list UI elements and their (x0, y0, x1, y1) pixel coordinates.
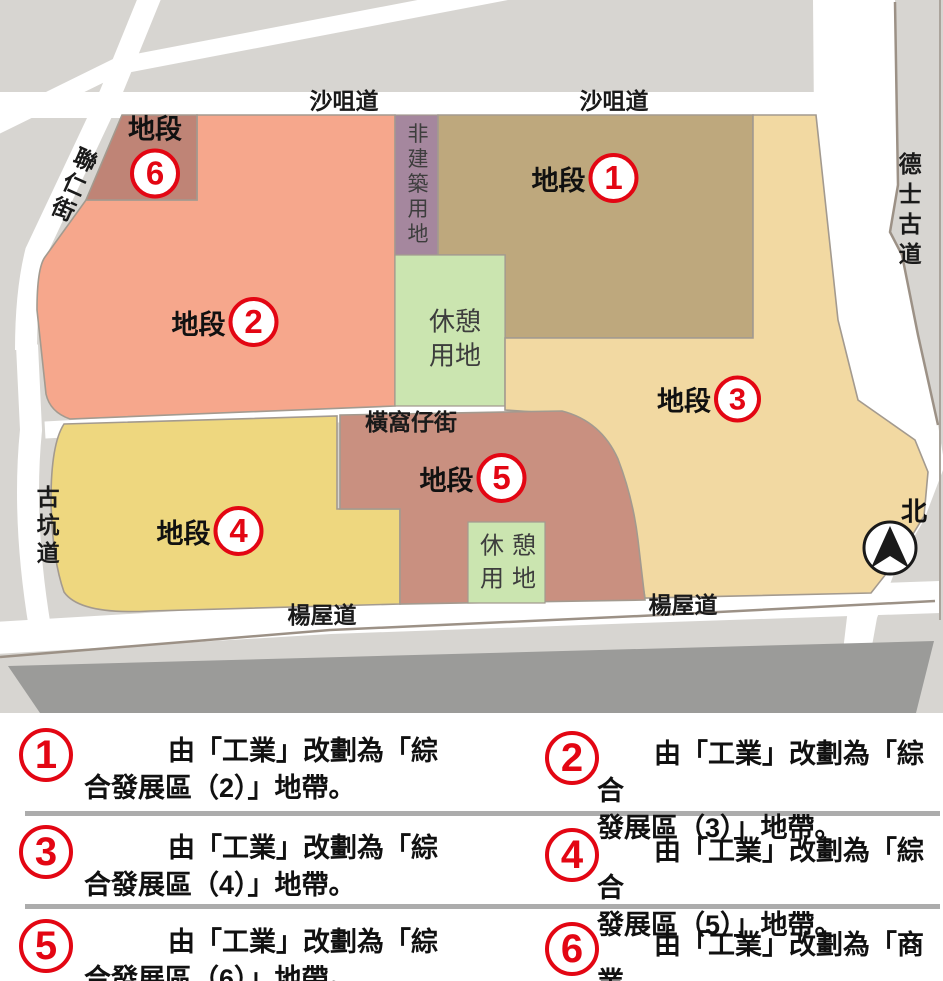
legend-item-3-line2: 合發展區（4）」地帶。 (84, 867, 456, 904)
parcel-2-number-badge: 2 (229, 297, 279, 347)
parcel-1-number-badge: 1 (589, 153, 639, 203)
parcel-4-label-group: 地段 4 (157, 506, 264, 556)
non-building-land-label: 非建築用地 (406, 123, 428, 248)
open-space-a-label-line1: 休憩 (429, 308, 481, 335)
parcel-3-label: 地段 (657, 380, 711, 419)
parcel-5-label: 地段 (420, 459, 474, 498)
legend: 1 由「工業」改劃為「綜 合發展區（2）」地帶。 2 由「工業」改劃為「綜合 發… (0, 713, 943, 981)
legend-item-3-number-badge: 3 (19, 825, 73, 879)
street-label-sha-tsui-road-east: 沙咀道 (580, 89, 649, 113)
legend-item-4-line1: 由「工業」改劃為「綜合 (597, 833, 941, 907)
legend-item-1-line2: 合發展區（2）」地帶。 (84, 770, 456, 807)
parcel-5-label-group: 地段 5 (420, 453, 527, 503)
parcel-2-label: 地段 (172, 303, 226, 342)
legend-item-6-number-badge: 6 (545, 922, 599, 976)
street-label-yeung-uk-road-west: 楊屋道 (288, 603, 357, 627)
street-label-sha-tsui-road-west: 沙咀道 (310, 89, 379, 113)
street-label-yeung-uk-road-east: 楊屋道 (649, 593, 718, 617)
parcel-3-label-group: 地段 3 (657, 376, 761, 423)
parcel-5-number-badge: 5 (477, 453, 527, 503)
street-label-koo-hang-road: 古坑道 (34, 485, 58, 569)
legend-item-6-line1: 由「工業」改劃為「商業 (597, 927, 941, 981)
legend-item-3-line1: 由「工業」改劃為「綜 (84, 830, 456, 867)
parcel-1-label: 地段 (532, 159, 586, 198)
legend-item-5-text: 由「工業」改劃為「綜 合發展區（6）」地帶。 (84, 924, 456, 981)
parcel-1-label-group: 地段 1 (532, 153, 639, 203)
legend-item-5-line1: 由「工業」改劃為「綜 (84, 924, 456, 961)
street-label-wang-wo-tsai-street: 橫窩仔街 (365, 410, 457, 434)
legend-item-4-number-badge: 4 (545, 828, 599, 882)
legend-item-5-number-badge: 5 (19, 919, 73, 973)
legend-item-3-text: 由「工業」改劃為「綜 合發展區（4）」地帶。 (84, 830, 456, 904)
open-space-b-label-line2: 用地 (472, 567, 544, 592)
legend-item-5-line2: 合發展區（6）」地帶。 (84, 961, 456, 981)
legend-item-2-text: 由「工業」改劃為「綜合 發展區（3）」地帶。 (597, 736, 941, 847)
compass-north-label: 北 (901, 492, 927, 529)
legend-item-6-text: 由「工業」改劃為「商業 （5）用途」。 (597, 927, 941, 981)
parcel-4-number-badge: 4 (214, 506, 264, 556)
parcel-6-label-group: 地段 6 (128, 108, 182, 199)
legend-item-1-text: 由「工業」改劃為「綜 合發展區（2）」地帶。 (84, 733, 456, 807)
parcel-2-label-group: 地段 2 (172, 297, 279, 347)
legend-item-1-number-badge: 1 (19, 728, 73, 782)
legend-item-1-line1: 由「工業」改劃為「綜 (84, 733, 456, 770)
open-space-b-label-line1: 休憩 (472, 534, 544, 559)
legend-item-2-line1: 由「工業」改劃為「綜合 (597, 736, 941, 810)
legend-item-2-number-badge: 2 (545, 731, 599, 785)
parcel-6-label: 地段 (128, 108, 182, 147)
open-space-a-label-line2: 用地 (429, 342, 481, 369)
street-label-texaco-road: 德士古道 (896, 152, 920, 272)
parcel-6-number-badge: 6 (130, 149, 180, 199)
zoning-map: 沙咀道 沙咀道 德士古道 聯仁街 橫窩仔街 古坑道 楊屋道 楊屋道 非建築用地 … (0, 0, 943, 713)
parcel-3-number-badge: 3 (714, 376, 761, 423)
zoning-map-page: 沙咀道 沙咀道 德士古道 聯仁街 橫窩仔街 古坑道 楊屋道 楊屋道 非建築用地 … (0, 0, 943, 981)
parcel-4-label: 地段 (157, 512, 211, 551)
